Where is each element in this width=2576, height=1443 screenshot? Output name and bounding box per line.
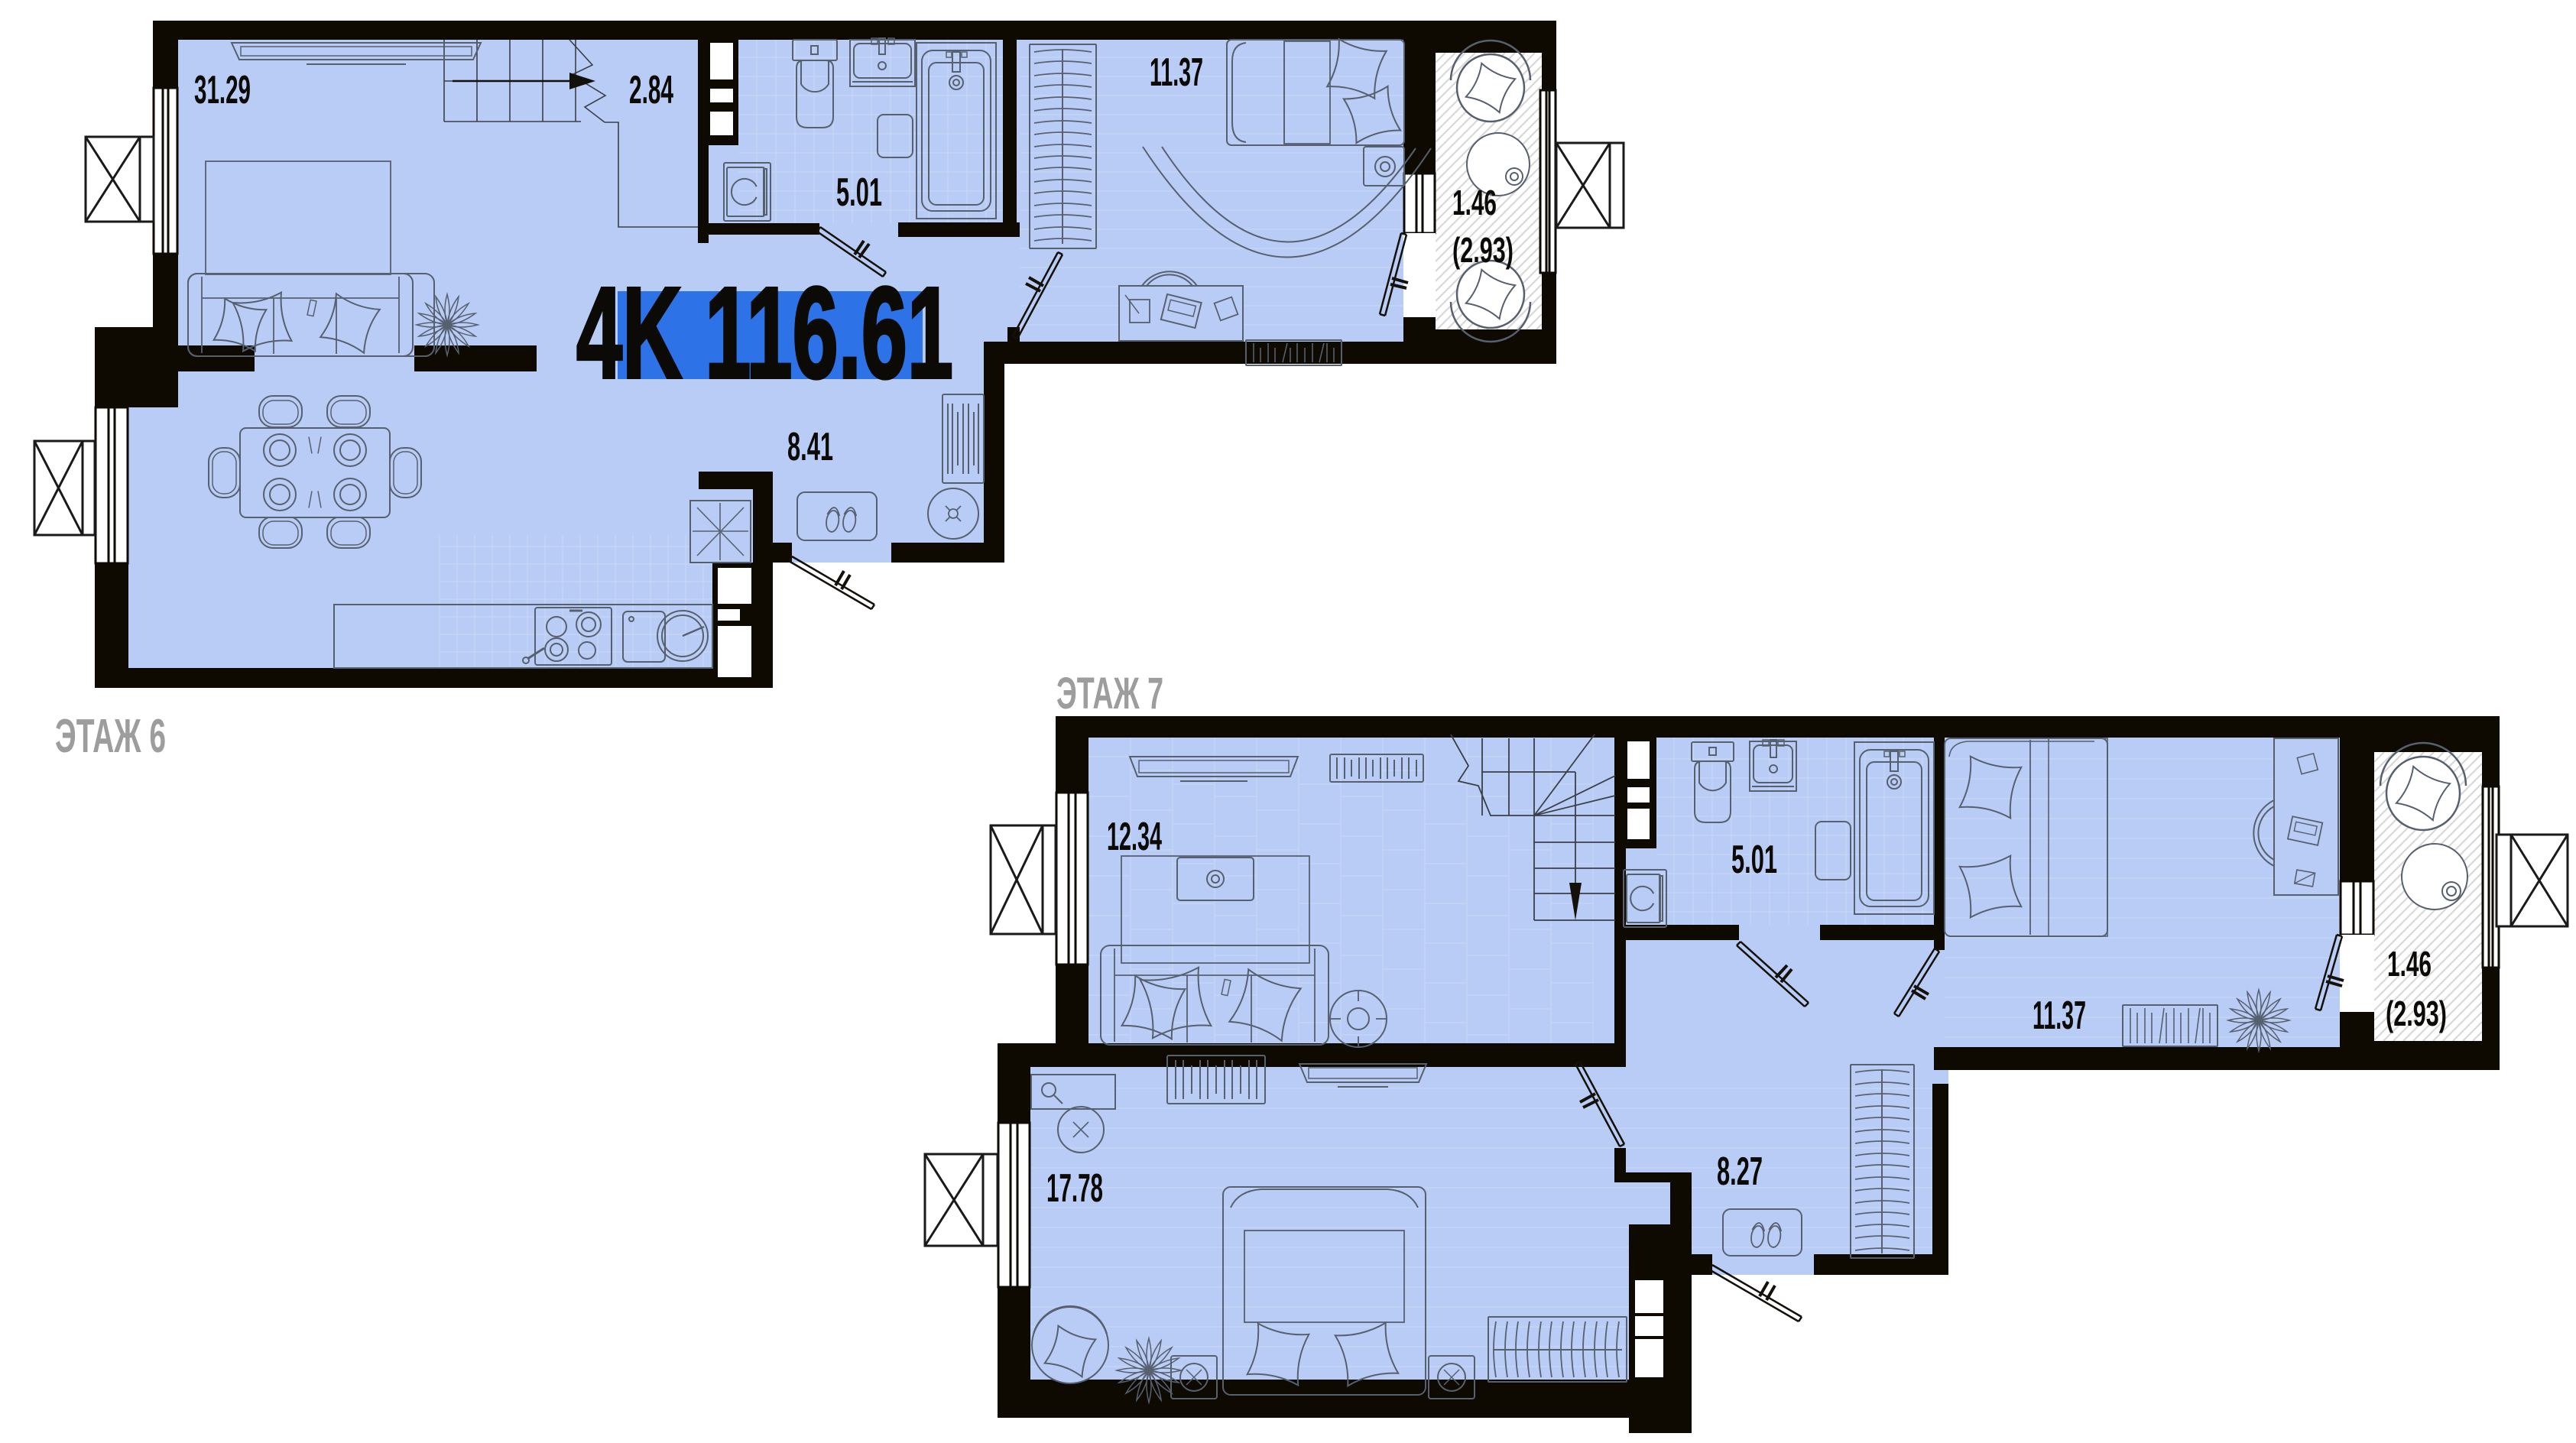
svg-text:ЭТАЖ 6: ЭТАЖ 6 <box>55 710 166 763</box>
svg-text:(2.93): (2.93) <box>1452 230 1513 270</box>
svg-text:11.37: 11.37 <box>2033 994 2086 1038</box>
svg-text:2.84: 2.84 <box>629 68 673 112</box>
svg-text:5.01: 5.01 <box>1731 838 1777 882</box>
svg-text:ЭТАЖ 7: ЭТАЖ 7 <box>1056 669 1163 718</box>
svg-text:1.46: 1.46 <box>2387 944 2432 984</box>
svg-text:8.41: 8.41 <box>787 425 833 469</box>
svg-text:1.46: 1.46 <box>1452 183 1497 222</box>
svg-text:12.34: 12.34 <box>1107 815 1162 859</box>
svg-text:(2.93): (2.93) <box>2386 994 2447 1033</box>
svg-text:31.29: 31.29 <box>194 68 251 112</box>
svg-text:5.01: 5.01 <box>836 170 882 215</box>
svg-text:11.37: 11.37 <box>1150 50 1203 95</box>
svg-text:8.27: 8.27 <box>1717 1150 1763 1194</box>
svg-text:4K 116.61: 4K 116.61 <box>576 261 953 406</box>
svg-text:17.78: 17.78 <box>1046 1166 1103 1211</box>
